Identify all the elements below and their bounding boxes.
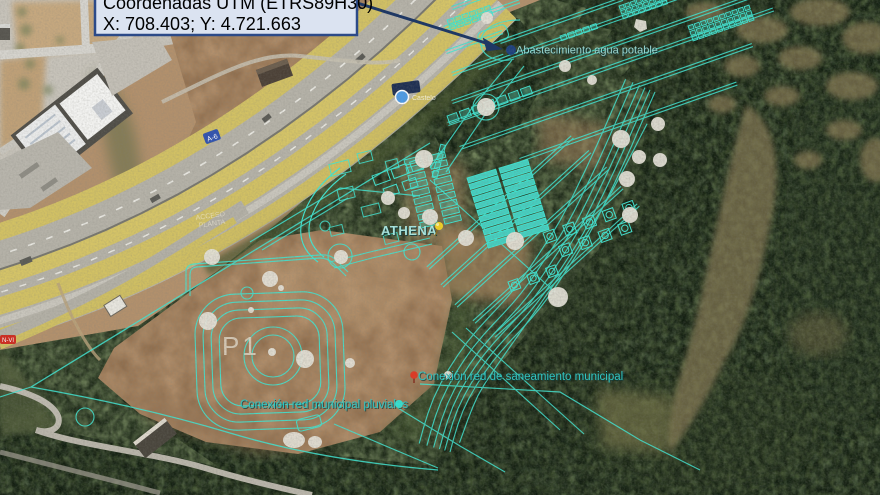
svg-text:Coordenadas UTM (ETRS89H30): Coordenadas UTM (ETRS89H30) <box>103 0 373 13</box>
svg-text:X: 708.403; Y: 4.721.663: X: 708.403; Y: 4.721.663 <box>103 14 301 34</box>
